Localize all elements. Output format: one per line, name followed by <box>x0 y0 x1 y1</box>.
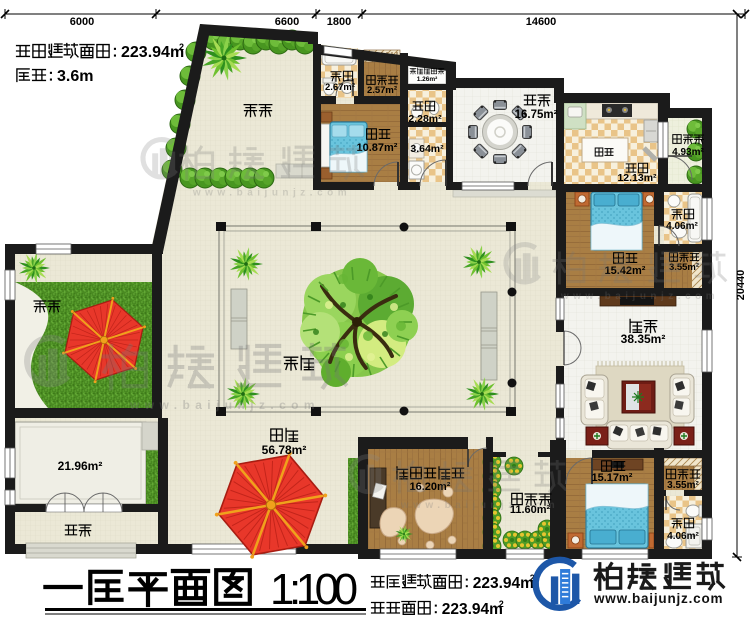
svg-text:16.75m²: 16.75m² <box>515 109 558 121</box>
svg-text:www.baijunjz.com: www.baijunjz.com <box>192 187 351 198</box>
svg-text:4.93m²: 4.93m² <box>672 147 704 158</box>
svg-text:3.55m²: 3.55m² <box>667 480 699 491</box>
svg-text:4.06m²: 4.06m² <box>666 221 698 232</box>
svg-text:3.6m: 3.6m <box>57 68 93 85</box>
svg-text:15.17m²: 15.17m² <box>592 472 633 484</box>
svg-text:2.57m²: 2.57m² <box>367 85 397 96</box>
svg-text:www.baijunjz.com: www.baijunjz.com <box>400 500 559 511</box>
svg-text:12.13m²: 12.13m² <box>617 172 657 184</box>
svg-text:2: 2 <box>499 599 504 609</box>
svg-text:223.94m: 223.94m <box>442 601 503 618</box>
svg-text:223.94m: 223.94m <box>473 575 534 592</box>
svg-text:www.baijunjz.com: www.baijunjz.com <box>129 398 320 412</box>
svg-text:3.64m²: 3.64m² <box>410 143 444 155</box>
svg-text:2.67m²: 2.67m² <box>325 82 355 93</box>
svg-text:6600: 6600 <box>275 16 299 28</box>
svg-text:www.baijunjz.com: www.baijunjz.com <box>560 291 719 302</box>
svg-text:20440: 20440 <box>735 270 747 301</box>
svg-text:10.87m²: 10.87m² <box>357 142 398 154</box>
svg-text:1:100: 1:100 <box>270 565 357 614</box>
svg-text:223.94m: 223.94m <box>121 44 184 61</box>
svg-text:2.28m²: 2.28m² <box>408 113 442 125</box>
svg-text:14600: 14600 <box>526 16 557 28</box>
svg-text:56.78m²: 56.78m² <box>262 443 307 457</box>
svg-text:4.06m²: 4.06m² <box>667 531 699 542</box>
svg-text:www.baijunjz.com: www.baijunjz.com <box>593 591 723 606</box>
svg-text:1.26m²: 1.26m² <box>417 76 438 83</box>
svg-text:2: 2 <box>179 42 184 52</box>
svg-text:1800: 1800 <box>327 16 351 28</box>
svg-text:38.35m²: 38.35m² <box>621 332 666 346</box>
svg-text:21.96m²: 21.96m² <box>58 459 103 473</box>
svg-text:6000: 6000 <box>70 16 94 28</box>
